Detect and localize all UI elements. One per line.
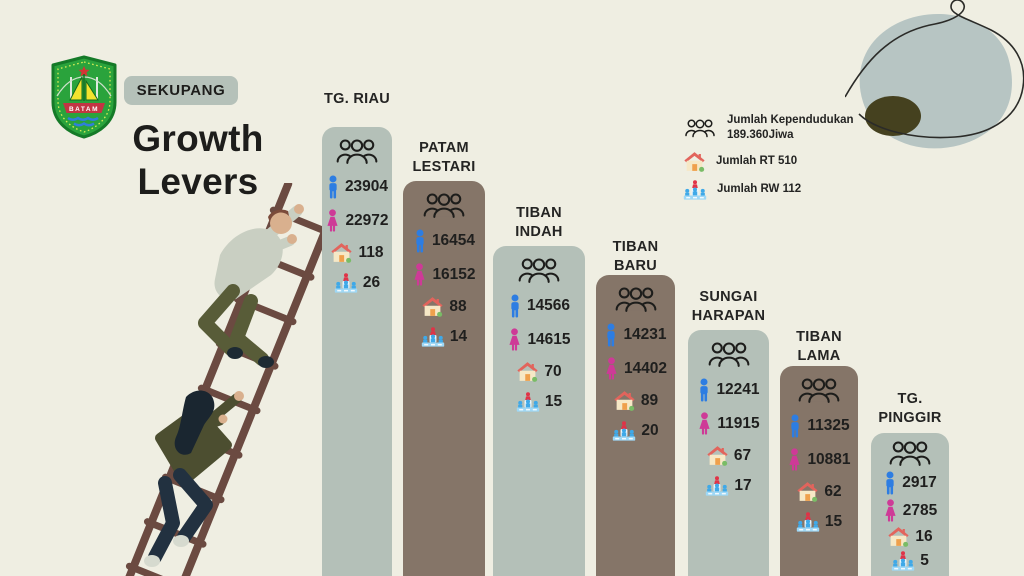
district-label: TIBAN BARU xyxy=(604,238,667,276)
population-group-icon xyxy=(706,339,752,368)
rt-count: 62 xyxy=(824,483,841,501)
female-icon xyxy=(325,209,340,232)
podium-icon xyxy=(796,512,820,532)
district-label: PATAM LESTARI xyxy=(407,139,481,177)
male-icon xyxy=(508,294,522,318)
rw-count: 26 xyxy=(363,274,380,292)
female-icon xyxy=(883,499,898,522)
podium-icon xyxy=(612,421,636,441)
male-count: 14566 xyxy=(527,297,570,315)
male-count: 16454 xyxy=(432,232,475,250)
rw-stat: 26 xyxy=(334,273,380,293)
house-icon xyxy=(796,481,819,502)
male-stat: 23904 xyxy=(326,175,388,199)
female-stat: 16152 xyxy=(412,263,475,286)
male-stat: 14231 xyxy=(604,323,666,347)
female-stat: 11915 xyxy=(697,412,759,435)
rt-stat: 88 xyxy=(421,296,466,317)
rw-stat: 15 xyxy=(516,392,562,412)
population-group-icon xyxy=(887,438,933,467)
female-count: 11915 xyxy=(717,415,759,433)
district-column: SUNGAI HARAPAN 12241 11915 67 17 xyxy=(688,0,769,576)
female-icon xyxy=(787,448,802,471)
population-group-icon xyxy=(334,136,380,165)
male-count: 12241 xyxy=(716,381,759,399)
female-count: 14615 xyxy=(527,331,570,349)
male-icon xyxy=(697,378,711,402)
rt-count: 70 xyxy=(544,363,561,381)
male-stat: 2917 xyxy=(883,471,936,495)
rt-stat: 89 xyxy=(613,390,658,411)
district-column: PATAM LESTARI 16454 16152 88 14 xyxy=(403,0,485,576)
population-group-icon xyxy=(516,255,562,284)
female-stat: 22972 xyxy=(325,209,388,232)
district-bar: 23904 22972 118 26 xyxy=(322,127,392,576)
district-bar: 14231 14402 89 20 xyxy=(596,275,675,576)
upper-climber-figure xyxy=(205,204,304,368)
house-icon xyxy=(887,526,910,547)
podium-icon xyxy=(334,273,358,293)
podium-icon xyxy=(891,551,915,571)
district-label: TG. RIAU xyxy=(304,90,410,109)
female-icon xyxy=(507,328,522,351)
rt-stat: 70 xyxy=(516,361,561,382)
male-icon xyxy=(326,175,340,199)
female-icon xyxy=(697,412,712,435)
rw-count: 20 xyxy=(641,422,658,440)
district-label: TG. PINGGIR xyxy=(875,390,945,428)
district-label: SUNGAI HARAPAN xyxy=(688,288,769,326)
rt-stat: 118 xyxy=(330,242,383,263)
rw-stat: 14 xyxy=(421,327,467,347)
district-bar: 16454 16152 88 14 xyxy=(403,181,485,576)
male-stat: 11325 xyxy=(788,414,849,438)
male-stat: 12241 xyxy=(697,378,759,402)
female-stat: 14615 xyxy=(507,328,570,351)
podium-icon xyxy=(516,392,540,412)
rt-count: 67 xyxy=(734,447,751,465)
male-icon xyxy=(883,471,897,495)
district-label: TIBAN LAMA xyxy=(788,328,850,366)
rt-count: 88 xyxy=(449,298,466,316)
female-stat: 10881 xyxy=(787,448,850,471)
district-bar: 14566 14615 70 15 xyxy=(493,246,585,576)
rw-count: 5 xyxy=(920,552,929,570)
rt-count: 16 xyxy=(915,528,932,546)
female-icon xyxy=(412,263,427,286)
male-stat: 16454 xyxy=(413,229,475,253)
house-icon xyxy=(421,296,444,317)
rt-count: 89 xyxy=(641,392,658,410)
rw-stat: 17 xyxy=(705,476,751,496)
rt-stat: 62 xyxy=(796,481,841,502)
female-icon xyxy=(604,357,619,380)
district-badge: SEKUPANG xyxy=(124,76,238,105)
rw-stat: 20 xyxy=(612,421,658,441)
district-column: TG. RIAU 23904 22972 118 26 xyxy=(322,0,392,576)
rw-count: 15 xyxy=(545,393,562,411)
female-stat: 2785 xyxy=(883,499,937,522)
female-count: 10881 xyxy=(807,451,850,469)
male-count: 14231 xyxy=(623,326,666,344)
rt-stat: 16 xyxy=(887,526,932,547)
male-count: 2917 xyxy=(902,474,936,492)
female-stat: 14402 xyxy=(604,357,667,380)
rw-count: 15 xyxy=(825,513,842,531)
population-group-icon xyxy=(421,190,467,219)
district-bar: 12241 11915 67 17 xyxy=(688,330,769,576)
district-column: TG. PINGGIR 2917 2785 16 5 xyxy=(871,0,949,576)
house-icon xyxy=(330,242,353,263)
female-count: 14402 xyxy=(624,360,667,378)
district-column: TIBAN INDAH 14566 14615 70 15 xyxy=(493,0,585,576)
logo-banner-text: BATAM xyxy=(69,106,99,113)
rw-stat: 15 xyxy=(796,512,842,532)
house-icon xyxy=(613,390,636,411)
rt-stat: 67 xyxy=(706,445,751,466)
population-group-icon xyxy=(613,284,659,313)
rw-count: 14 xyxy=(450,328,467,346)
male-icon xyxy=(413,229,427,253)
house-icon xyxy=(516,361,539,382)
district-column: TIBAN LAMA 11325 10881 62 15 xyxy=(780,0,858,576)
male-stat: 14566 xyxy=(508,294,570,318)
female-count: 22972 xyxy=(345,212,388,230)
house-icon xyxy=(706,445,729,466)
district-bar: 2917 2785 16 5 xyxy=(871,433,949,576)
rw-count: 17 xyxy=(734,477,751,495)
ladder-climbers-illustration xyxy=(85,183,350,576)
rt-count: 118 xyxy=(358,244,383,262)
podium-icon xyxy=(421,327,445,347)
male-count: 23904 xyxy=(345,178,388,196)
district-column: TIBAN BARU 14231 14402 89 20 xyxy=(596,0,675,576)
male-count: 11325 xyxy=(807,417,849,435)
district-bar: 11325 10881 62 15 xyxy=(780,366,858,576)
male-icon xyxy=(604,323,618,347)
female-count: 2785 xyxy=(903,502,937,520)
population-group-icon xyxy=(796,375,842,404)
district-label: TIBAN INDAH xyxy=(501,204,577,242)
male-icon xyxy=(788,414,802,438)
rw-stat: 5 xyxy=(891,551,929,571)
female-count: 16152 xyxy=(432,266,475,284)
podium-icon xyxy=(705,476,729,496)
